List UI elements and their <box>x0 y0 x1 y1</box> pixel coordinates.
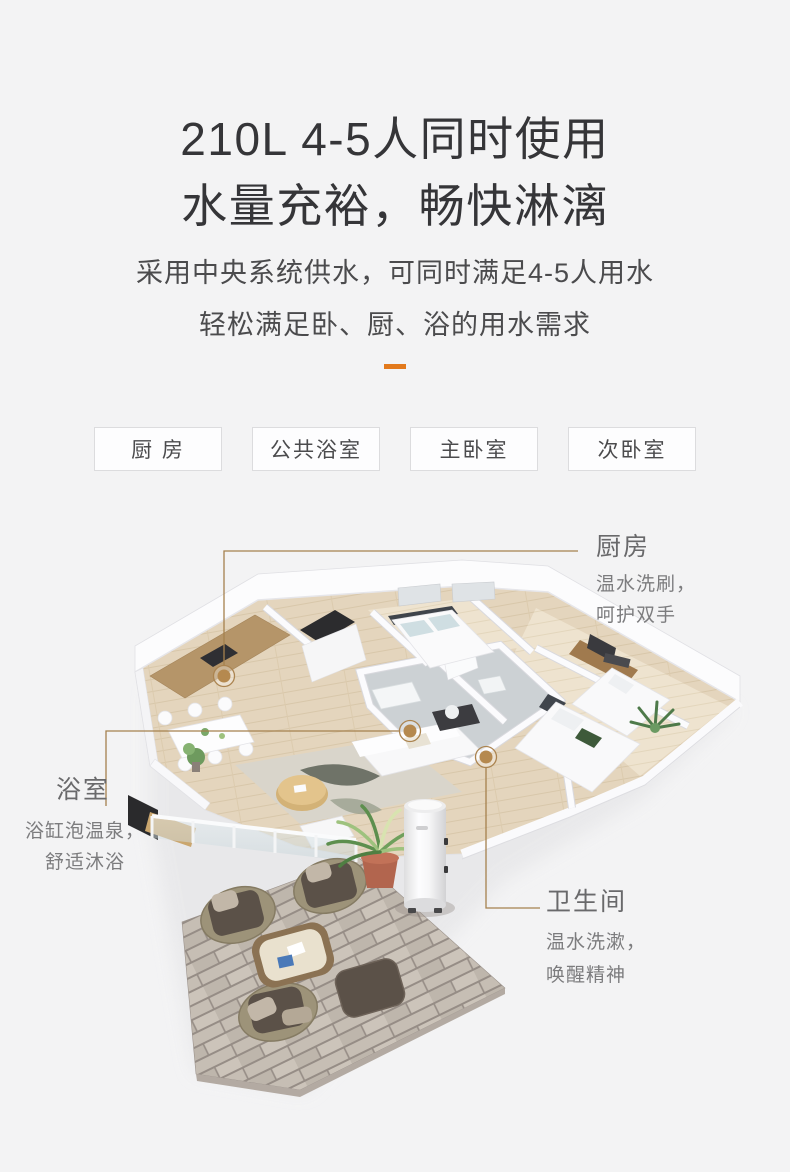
callout-bathroom-desc: 浴缸泡温泉， 舒适沐浴 <box>10 816 160 878</box>
title-line-1: 210L 4-5人同时使用 <box>0 106 790 173</box>
callout-toilet-title: 卫生间 <box>546 888 646 916</box>
page-title: 210L 4-5人同时使用 水量充裕，畅快淋漓 <box>0 106 790 240</box>
title-line-2: 水量充裕，畅快淋漓 <box>0 173 790 240</box>
callout-bathroom: 浴室 浴缸泡温泉， 舒适沐浴 <box>10 776 160 878</box>
subtitle-line-1: 采用中央系统供水，可同时满足4-5人用水 <box>0 247 790 299</box>
subtitle-line-2: 轻松满足卧、厨、浴的用水需求 <box>0 299 790 351</box>
tab-second-bedroom[interactable]: 次卧室 <box>568 427 696 471</box>
kitchen-marker-dot <box>214 666 235 687</box>
accent-divider <box>384 364 406 369</box>
page-subtitle: 采用中央系统供水，可同时满足4-5人用水 轻松满足卧、厨、浴的用水需求 <box>0 247 790 351</box>
water-heater-product <box>395 799 455 917</box>
callout-kitchen-title: 厨房 <box>596 533 696 561</box>
callout-bathroom-title: 浴室 <box>10 776 160 804</box>
callout-kitchen-desc: 温水洗刷， 呵护双手 <box>596 569 696 631</box>
room-tabs: 厨 房 公共浴室 主卧室 次卧室 <box>0 427 790 471</box>
bathroom-marker-dot <box>400 721 421 742</box>
tab-kitchen[interactable]: 厨 房 <box>94 427 222 471</box>
toilet-marker-dot <box>476 747 497 768</box>
tab-master-bedroom[interactable]: 主卧室 <box>410 427 538 471</box>
callout-toilet-desc: 温水洗漱， 唤醒精神 <box>546 926 646 992</box>
product-detail-page: 210L 4-5人同时使用 水量充裕，畅快淋漓 采用中央系统供水，可同时满足4-… <box>0 0 790 1172</box>
tab-public-bathroom[interactable]: 公共浴室 <box>252 427 380 471</box>
callout-toilet: 卫生间 温水洗漱， 唤醒精神 <box>546 888 646 992</box>
callout-kitchen: 厨房 温水洗刷， 呵护双手 <box>596 533 696 631</box>
